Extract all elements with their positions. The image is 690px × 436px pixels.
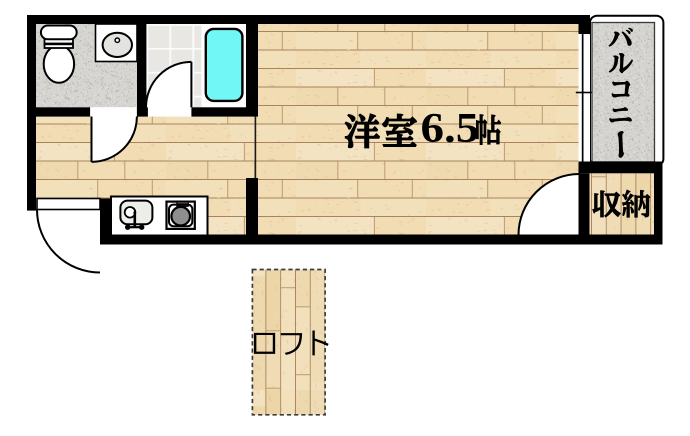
svg-text:6.5: 6.5 [421, 104, 480, 151]
